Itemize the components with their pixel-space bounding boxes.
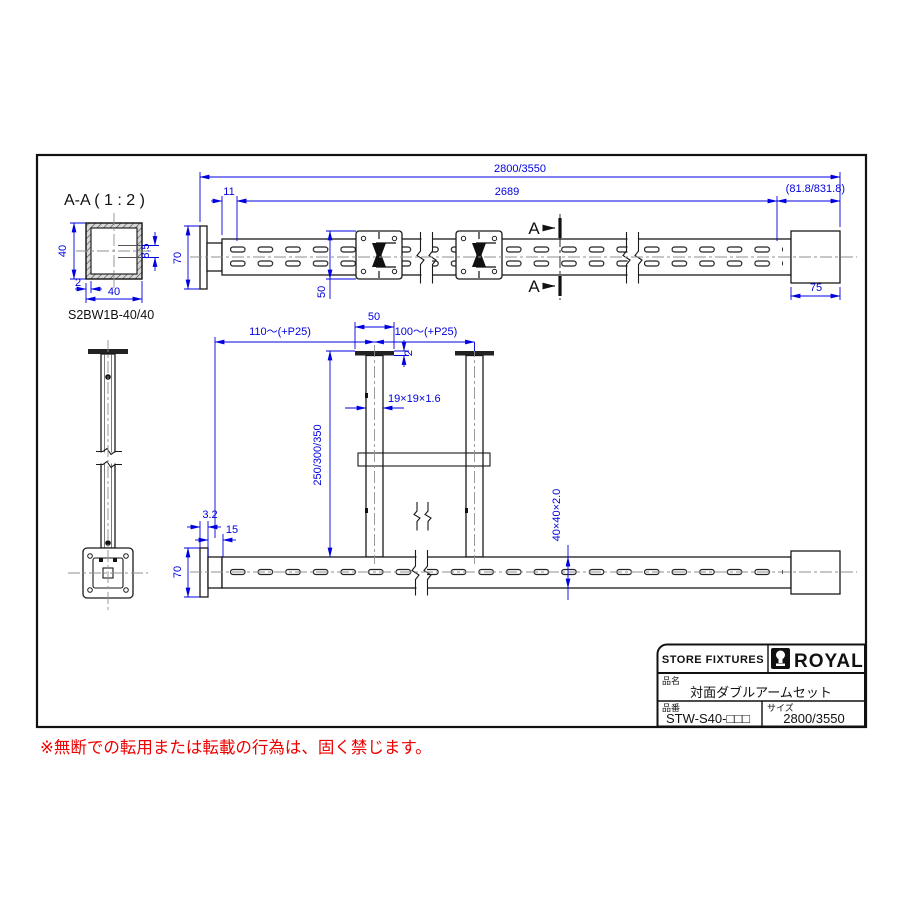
royal-logo: ROYAL	[771, 648, 864, 672]
dim-post-height: 250/300/350	[312, 424, 324, 485]
title-block-header: STORE FIXTURES	[662, 654, 764, 666]
name-label: 品名	[662, 675, 680, 686]
dim-pitch-left: 110～(+P25)	[249, 326, 311, 338]
dim-plate-thickness: 3.2	[202, 509, 217, 521]
dim-post-tube: 19×19×1.6	[388, 393, 441, 405]
product-name: 対面ダブルアームセット	[690, 685, 832, 700]
section-view-title: A-A ( 1 : 2 )	[64, 192, 145, 209]
brand-name: ROYAL	[794, 651, 864, 672]
dim-plate-size: 50	[316, 286, 328, 298]
dim-wall-thickness: 2	[75, 277, 81, 289]
drawing-page: A-A ( 1 : 2 ) 40 8.5 2 40 S2BW1B-40/40	[0, 0, 900, 900]
dim-flange-width: 50	[368, 311, 380, 323]
dim-tube-width: 40	[108, 286, 120, 298]
technical-drawing: A-A ( 1 : 2 ) 40 8.5 2 40 S2BW1B-40/40	[0, 0, 900, 900]
dim-arm-tube: 40×40×2.0	[551, 489, 563, 542]
front-mid-break	[414, 502, 431, 531]
dim-inset: 15	[226, 524, 238, 536]
dim-end-length: (81.8/831.8)	[786, 183, 845, 195]
dim-slot-span: 2689	[495, 186, 519, 198]
front-end-sleeve	[791, 551, 840, 594]
side-break	[96, 449, 122, 468]
section-view-aa: A-A ( 1 : 2 ) 40 8.5 2 40 S2BW1B-40/40	[57, 192, 159, 322]
dim-tube-height: 40	[57, 245, 69, 257]
front-view: 110～(+P25) 100～(+P25) 50 2 19×19×1.6 250…	[172, 311, 857, 600]
section-label-bottom: A	[528, 277, 540, 296]
dim-sleeve-length: 75	[810, 282, 822, 294]
dim-pitch-right: 100～(+P25)	[395, 326, 458, 338]
tube-part-number: S2BW1B-40/40	[68, 308, 154, 322]
dim-wall-plate-height-top: 70	[172, 252, 184, 264]
front-neck	[208, 557, 222, 588]
title-block: STORE FIXTURES ROYAL 品名 対面ダブルアームセット 品番 S…	[658, 645, 866, 727]
dim-wall-plate-height-front: 70	[172, 566, 184, 578]
top-wall-plate	[200, 226, 207, 289]
product-code: STW-S40-□□□	[666, 711, 750, 726]
dim-overall-length: 2800/3550	[494, 163, 546, 175]
dim-slot-height: 8.5	[140, 243, 152, 258]
product-size: 2800/3550	[783, 711, 844, 726]
dim-flange-thickness: 2	[403, 350, 415, 356]
dim-end-offset: 11	[223, 186, 234, 198]
copyright-warning: ※無断での転用または転載の行為は、固く禁じます。	[40, 738, 432, 757]
front-wall-plate	[200, 548, 208, 597]
section-label-top: A	[528, 219, 540, 238]
side-view	[68, 340, 148, 612]
top-view: A A 2800/3550 11 2689 (81.8/831.8) 75 50…	[172, 163, 857, 300]
